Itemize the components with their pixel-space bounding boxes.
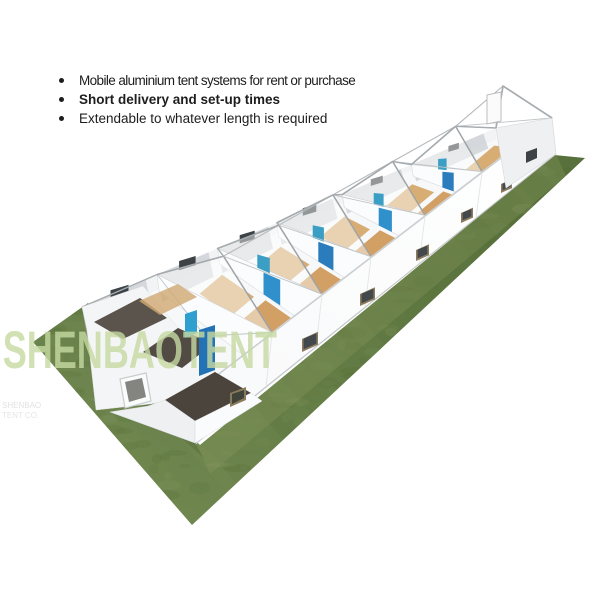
svg-text:TENT CO.: TENT CO.	[2, 411, 39, 420]
svg-text:SHENBAOTENT: SHENBAOTENT	[3, 320, 278, 380]
svg-text:SHENBAO: SHENBAO	[2, 401, 41, 410]
